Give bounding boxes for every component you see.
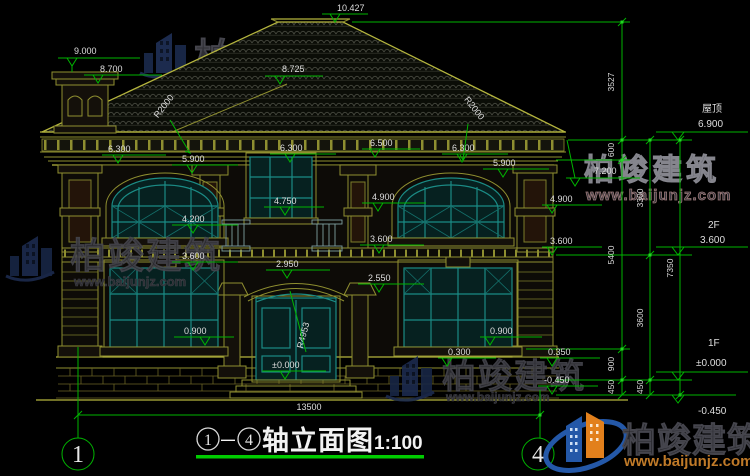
porch-column-right bbox=[352, 295, 368, 366]
svg-text:4.900: 4.900 bbox=[550, 194, 573, 204]
level-roof: 屋顶 6.900 bbox=[656, 103, 748, 140]
window-1f-right bbox=[394, 257, 522, 356]
dim-3600: 3600 bbox=[635, 308, 645, 327]
svg-text:3.600: 3.600 bbox=[550, 236, 573, 246]
svg-text:www.baijunjz.com: www.baijunjz.com bbox=[73, 274, 186, 289]
dim-450-inner: 450 bbox=[606, 380, 616, 394]
level-2f: 2F 3.600 bbox=[656, 220, 748, 255]
brand-logo: 柏竣建筑 www.baijunjz.com bbox=[539, 412, 750, 476]
title-text: 轴立面图 bbox=[262, 425, 374, 456]
svg-text:www.baijunjz.com: www.baijunjz.com bbox=[585, 187, 731, 204]
title-bubble-left: 1 bbox=[204, 432, 212, 449]
chimney bbox=[52, 72, 118, 133]
svg-text:0.300: 0.300 bbox=[448, 347, 471, 357]
cad-elevation-screenshot: 柏竣建筑 www.baijunjz.com bbox=[0, 0, 750, 476]
svg-text:-0.450: -0.450 bbox=[698, 406, 727, 417]
dim-13500: 13500 bbox=[296, 402, 321, 412]
svg-text:5.900: 5.900 bbox=[493, 158, 516, 168]
dim-5400: 5400 bbox=[606, 245, 616, 264]
svg-text:6.500: 6.500 bbox=[370, 138, 393, 148]
title-underline bbox=[196, 455, 424, 459]
dim-3527: 3527 bbox=[606, 72, 616, 91]
porch-column-right-capital bbox=[344, 283, 376, 295]
title-scale: 1:100 bbox=[374, 433, 423, 454]
svg-text:0.900: 0.900 bbox=[490, 326, 513, 336]
svg-text:6.300: 6.300 bbox=[452, 143, 475, 153]
dim-600: 600 bbox=[606, 143, 616, 157]
title-separator: — bbox=[221, 431, 235, 447]
svg-text:7.200: 7.200 bbox=[594, 166, 617, 176]
svg-text:5.900: 5.900 bbox=[182, 154, 205, 164]
axis-bubble-left: 1 bbox=[62, 438, 94, 470]
window-2f-center bbox=[244, 153, 318, 224]
svg-text:4.900: 4.900 bbox=[372, 192, 395, 202]
svg-text:4.200: 4.200 bbox=[182, 214, 205, 224]
svg-text:10.427: 10.427 bbox=[337, 3, 365, 13]
svg-text:3.600: 3.600 bbox=[370, 234, 393, 244]
svg-text:6.300: 6.300 bbox=[108, 144, 131, 154]
svg-text:9.000: 9.000 bbox=[74, 46, 97, 56]
svg-text:±0.000: ±0.000 bbox=[272, 360, 299, 370]
drawing-title: 1 — 4 轴立面图 1:100 bbox=[196, 425, 424, 459]
svg-text:-0.450: -0.450 bbox=[544, 375, 570, 385]
svg-text:6.300: 6.300 bbox=[280, 143, 303, 153]
svg-text:3.600: 3.600 bbox=[700, 235, 725, 246]
svg-text:1F: 1F bbox=[708, 338, 720, 349]
svg-text:8.700: 8.700 bbox=[100, 64, 123, 74]
svg-text:6.900: 6.900 bbox=[698, 119, 723, 130]
porch-column-left-capital bbox=[216, 283, 248, 295]
dim-7350: 7350 bbox=[665, 258, 675, 277]
logo-tower-orange bbox=[586, 412, 604, 458]
dim-3300: 3300 bbox=[635, 188, 645, 207]
svg-text:www.baijunjz.com: www.baijunjz.com bbox=[445, 390, 550, 404]
elev-chimney-top: 9.000 bbox=[58, 46, 140, 72]
dim-900: 900 bbox=[606, 357, 616, 371]
svg-text:3.600: 3.600 bbox=[182, 251, 205, 261]
svg-text:8.725: 8.725 bbox=[282, 64, 305, 74]
svg-text:0.350: 0.350 bbox=[548, 347, 571, 357]
logo-tower-blue bbox=[566, 416, 582, 462]
svg-text:0.900: 0.900 bbox=[184, 326, 207, 336]
entry-steps bbox=[230, 380, 362, 398]
dim-450-mid: 450 bbox=[635, 380, 645, 394]
title-bubble-right: 4 bbox=[245, 432, 253, 449]
svg-text:±0.000: ±0.000 bbox=[696, 358, 727, 369]
svg-text:4: 4 bbox=[532, 442, 544, 468]
svg-text:2.950: 2.950 bbox=[276, 259, 299, 269]
level-1f: 1F ±0.000 bbox=[656, 338, 748, 380]
svg-text:屋顶: 屋顶 bbox=[702, 103, 722, 115]
svg-text:2.550: 2.550 bbox=[368, 273, 391, 283]
window-2f-right bbox=[388, 173, 514, 246]
level-minus450: -0.450 bbox=[644, 395, 736, 417]
svg-text:2F: 2F bbox=[708, 220, 720, 231]
logo-url-text: www.baijunjz.com bbox=[623, 453, 750, 470]
svg-text:1: 1 bbox=[72, 442, 84, 468]
elevation-drawing: 柏竣建筑 www.baijunjz.com bbox=[0, 0, 750, 476]
svg-text:4.750: 4.750 bbox=[274, 196, 297, 206]
